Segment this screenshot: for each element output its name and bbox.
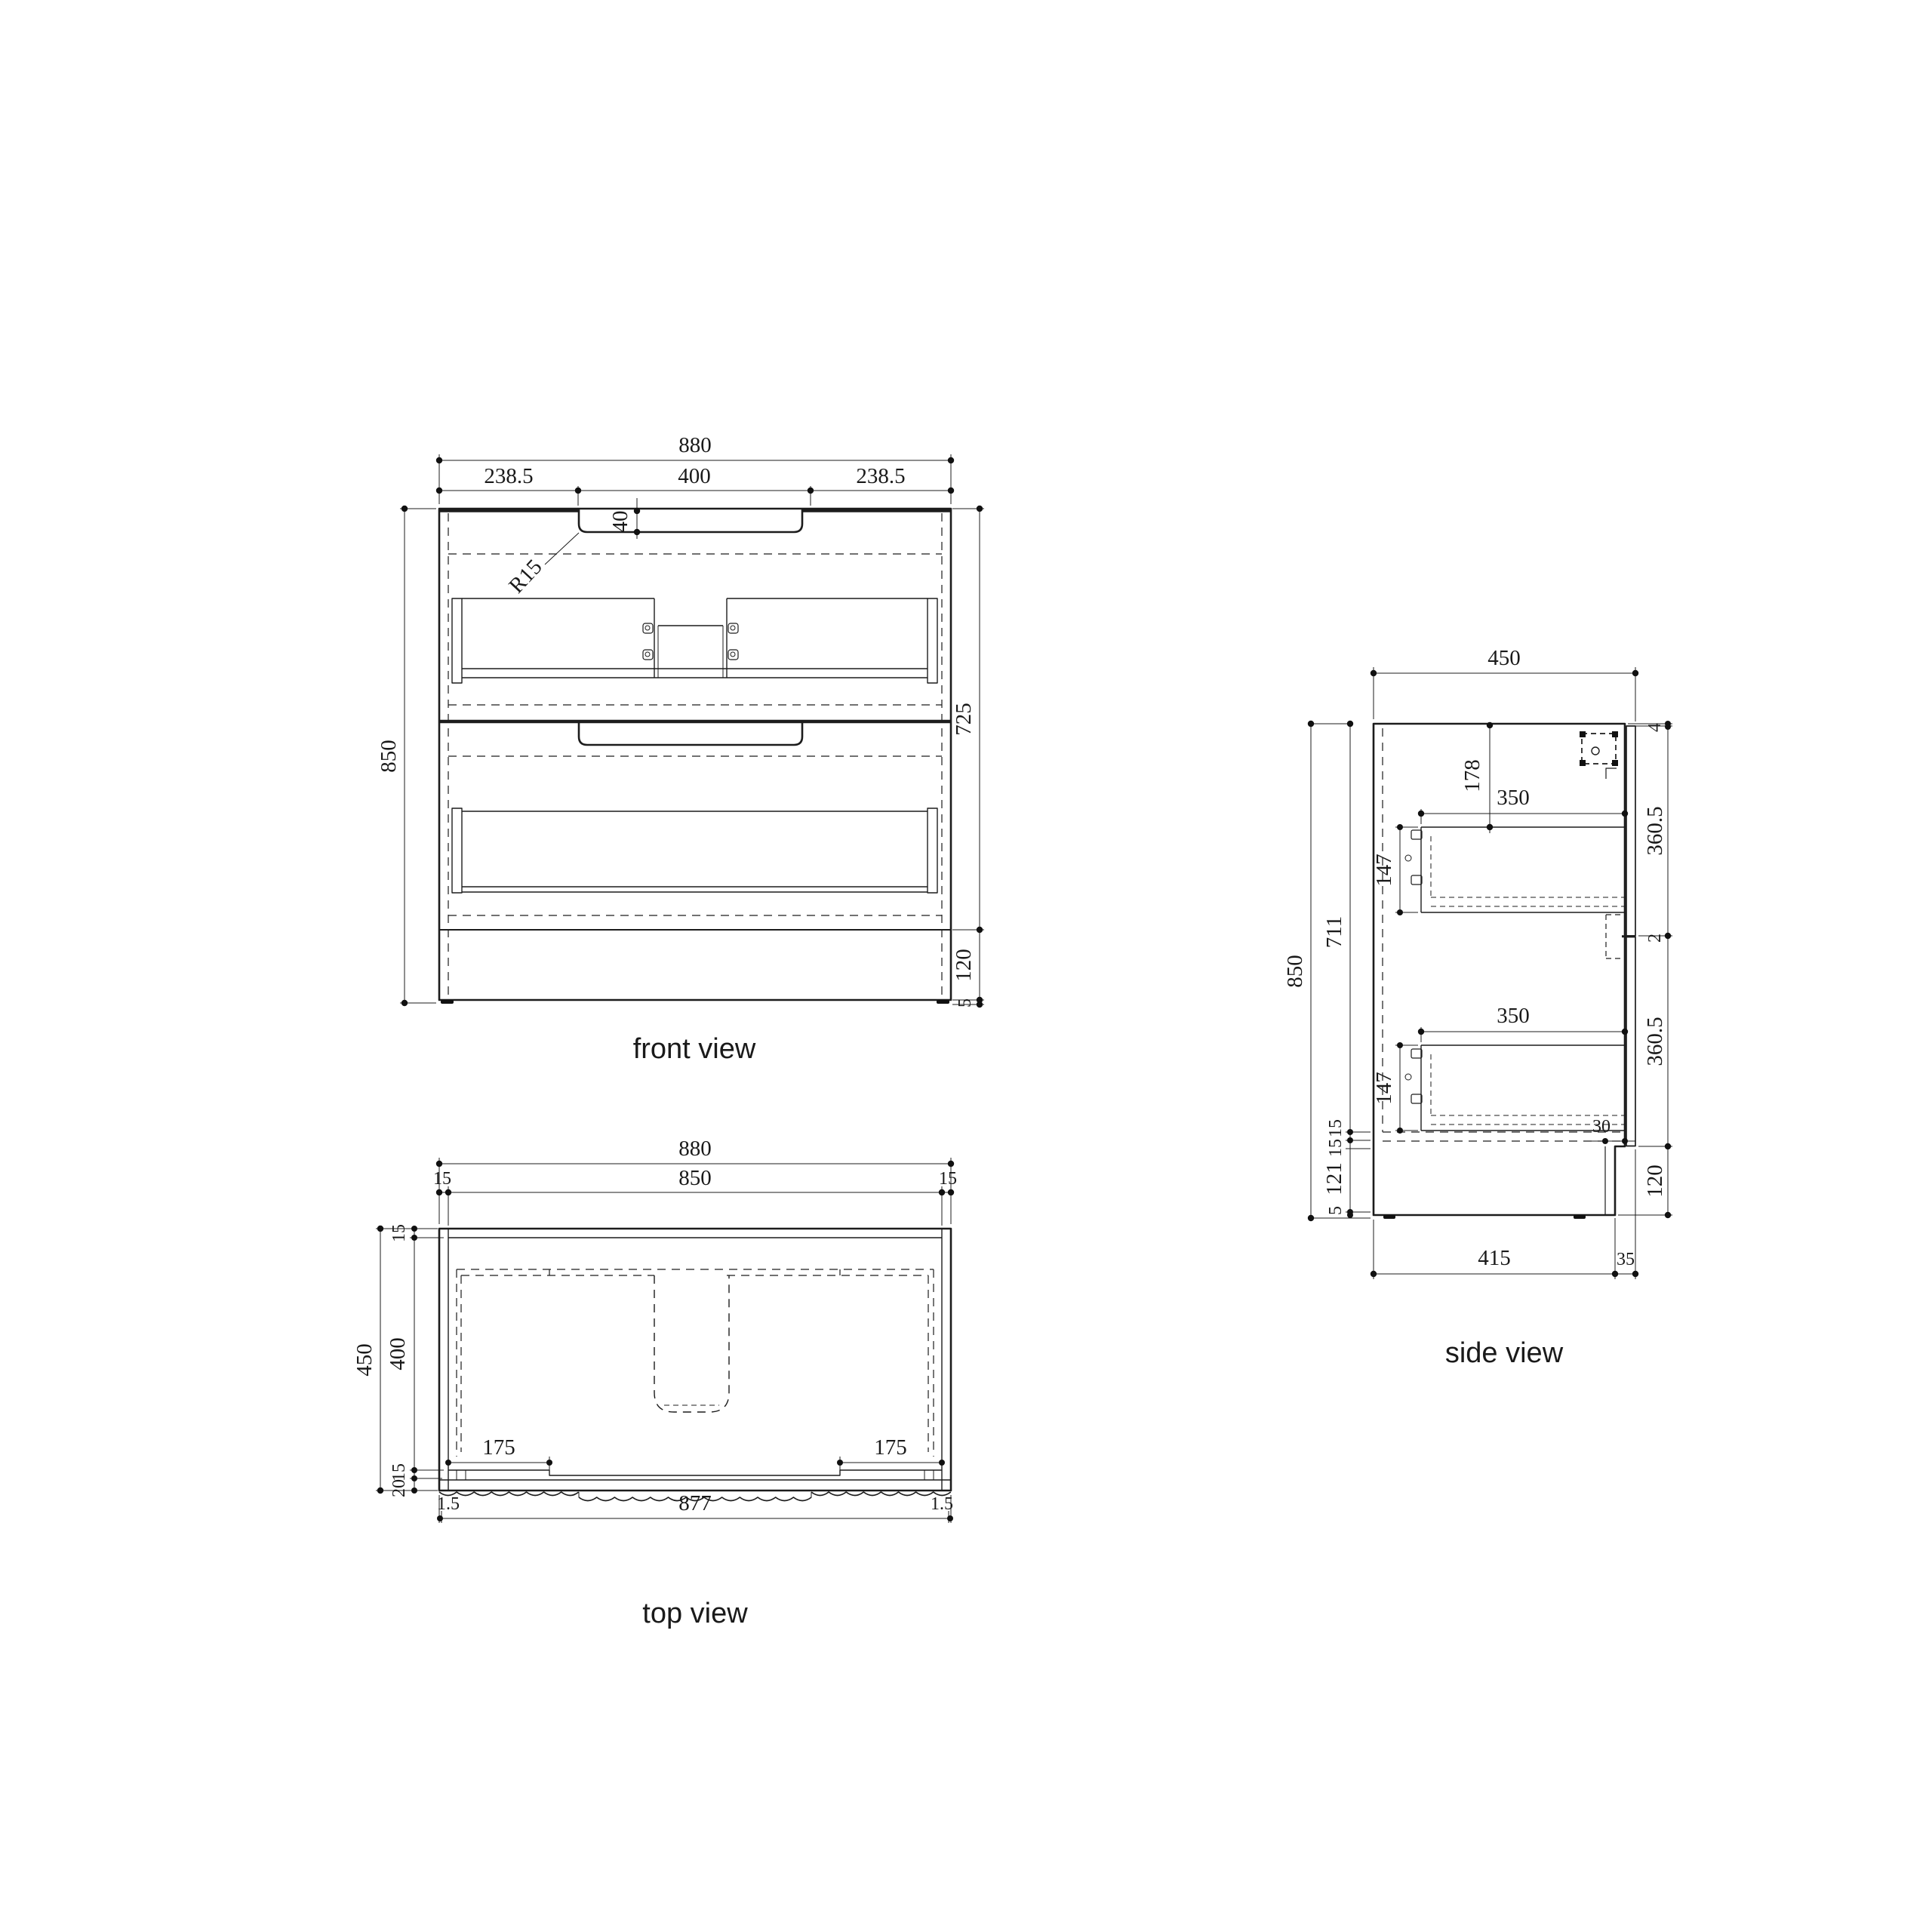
- top-dim-wall-right: 15: [939, 1169, 957, 1189]
- top-dim-wall-front: 15: [389, 1463, 409, 1481]
- front-dim-handle-depth: 40: [608, 511, 632, 533]
- side-drawer-front-upper: [1626, 726, 1635, 936]
- side-dim-foot-height: 5: [1326, 1206, 1346, 1215]
- front-dim-handle-radius: R15: [504, 555, 546, 598]
- side-dim-carcass-height: 711: [1322, 916, 1346, 948]
- front-view: 880 238.5 400 238.5 40 R15 850 725 120 5…: [377, 433, 984, 1065]
- top-dim-overall-depth: 450: [352, 1343, 377, 1377]
- side-view-label: side view: [1445, 1337, 1564, 1369]
- side-dim-panel-15b: 15: [1326, 1139, 1346, 1157]
- side-dim-plinth-height: 120: [1643, 1164, 1667, 1198]
- side-dim-plinth-inner: 121: [1322, 1162, 1346, 1195]
- front-dim-shoulder-left: 238.5: [484, 464, 533, 488]
- side-foot-front: [1574, 1215, 1586, 1219]
- top-hidden-lines: [457, 1269, 934, 1457]
- top-wavy-edge-left: [439, 1492, 579, 1496]
- side-wall-bracket: [1580, 731, 1618, 779]
- front-view-label: front view: [633, 1033, 756, 1065]
- top-dim-inner-depth: 400: [386, 1337, 410, 1371]
- top-front-wall-stepped: [448, 1470, 942, 1475]
- top-dim-flat-right: 175: [874, 1435, 907, 1460]
- side-dim-drawer-height-lower: 147: [1372, 1072, 1396, 1105]
- drawing-sheet: 880 238.5 400 238.5 40 R15 850 725 120 5…: [0, 0, 1932, 1932]
- top-dim-overall-width: 880: [678, 1137, 712, 1161]
- side-dim-front-setback: 35: [1617, 1250, 1635, 1269]
- top-dim-flat-left: 175: [482, 1435, 515, 1460]
- top-dim-panel-span: 850: [678, 1166, 712, 1190]
- front-dim-overall-height: 850: [377, 740, 401, 773]
- side-dim-front-gap: 2: [1645, 934, 1665, 943]
- front-dim-shoulder-right: 238.5: [856, 464, 905, 488]
- top-dim-wall-left: 15: [433, 1169, 451, 1189]
- front-foot-left: [441, 1000, 454, 1004]
- side-dim-overall-height: 850: [1283, 955, 1307, 988]
- side-dim-base-depth: 415: [1478, 1246, 1511, 1270]
- top-dim-edge-right: 1.5: [931, 1494, 953, 1514]
- side-dim-drawer-height-upper: 147: [1372, 854, 1396, 887]
- front-dim-body-height: 725: [952, 703, 976, 736]
- side-dim-front-upper: 360.5: [1643, 806, 1667, 855]
- front-dim-overall-width: 880: [678, 433, 712, 457]
- front-runner-clips: [643, 623, 738, 660]
- side-dim-drawer-depth-lower: 350: [1497, 1004, 1530, 1028]
- side-foot-back: [1383, 1215, 1395, 1219]
- technical-drawing: 880 238.5 400 238.5 40 R15 850 725 120 5…: [0, 0, 1932, 1932]
- side-drawer-front-lower: [1626, 937, 1635, 1146]
- top-sink-cutout: [654, 1275, 729, 1412]
- front-dim-plinth-height: 120: [952, 949, 976, 982]
- side-dim-drawer-depth-upper: 350: [1497, 786, 1530, 810]
- top-dim-front-panel-width: 877: [678, 1491, 712, 1515]
- front-handle-recess-bottom: [579, 722, 802, 745]
- top-view: 880 15 850 15 450 15 400 15 20 175 175: [352, 1137, 957, 1629]
- top-dim-edge-left: 1.5: [437, 1494, 460, 1514]
- front-lower-drawer-box: [452, 808, 937, 893]
- top-dim-front-band: 20: [389, 1479, 409, 1497]
- side-dim-toe-recess: 30: [1592, 1117, 1611, 1137]
- side-dim-top-gap: 4: [1645, 723, 1665, 732]
- front-dim-handle-width: 400: [678, 464, 711, 488]
- side-dim-front-lower: 360.5: [1643, 1017, 1667, 1066]
- top-view-label: top view: [642, 1598, 748, 1629]
- top-dimensions: 880 15 850 15 450 15 400 15 20 175 175: [352, 1137, 957, 1523]
- front-radius-leader: [545, 533, 579, 565]
- side-dim-drawer-top-offset: 178: [1460, 759, 1484, 792]
- front-foot-right: [937, 1000, 949, 1004]
- side-upper-drawer-box: [1405, 827, 1625, 912]
- front-upper-drawer-box: [452, 598, 937, 683]
- top-dim-wall-back: 15: [389, 1224, 409, 1242]
- side-dim-panel-15a: 15: [1326, 1119, 1346, 1137]
- front-dim-foot-height: 5: [955, 998, 975, 1008]
- side-dimensions: 450 850 711 15 15 121 5 4 360.5 2 360.5 …: [1283, 646, 1672, 1279]
- side-view: 450 850 711 15 15 121 5 4 360.5 2 360.5 …: [1283, 646, 1672, 1369]
- side-dim-overall-depth: 450: [1487, 646, 1521, 670]
